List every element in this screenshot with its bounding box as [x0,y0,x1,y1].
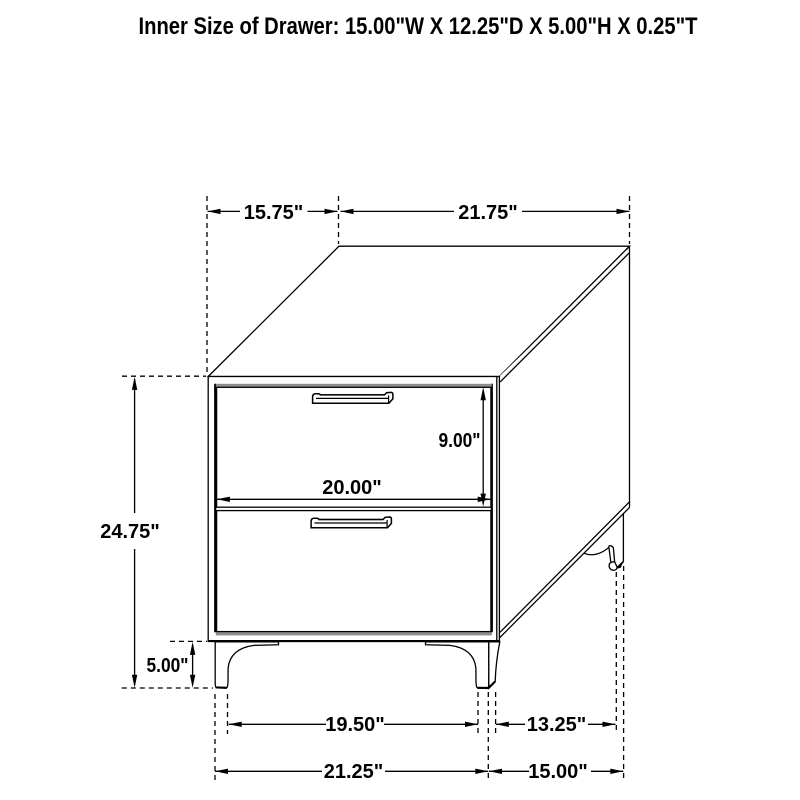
svg-text:9.00": 9.00" [439,430,481,452]
svg-text:15.75": 15.75" [244,202,304,224]
svg-text:5.00": 5.00" [147,655,189,677]
svg-text:13.25": 13.25" [527,714,587,736]
svg-text:20.00": 20.00" [322,477,382,499]
svg-text:Inner Size of Drawer: 15.00"W: Inner Size of Drawer: 15.00"W X 12.25"D … [139,13,698,40]
svg-text:15.00": 15.00" [528,761,588,783]
svg-text:21.25": 21.25" [324,761,384,783]
svg-text:21.75": 21.75" [458,202,518,224]
svg-text:24.75": 24.75" [100,521,160,543]
svg-text:19.50": 19.50" [325,714,385,736]
